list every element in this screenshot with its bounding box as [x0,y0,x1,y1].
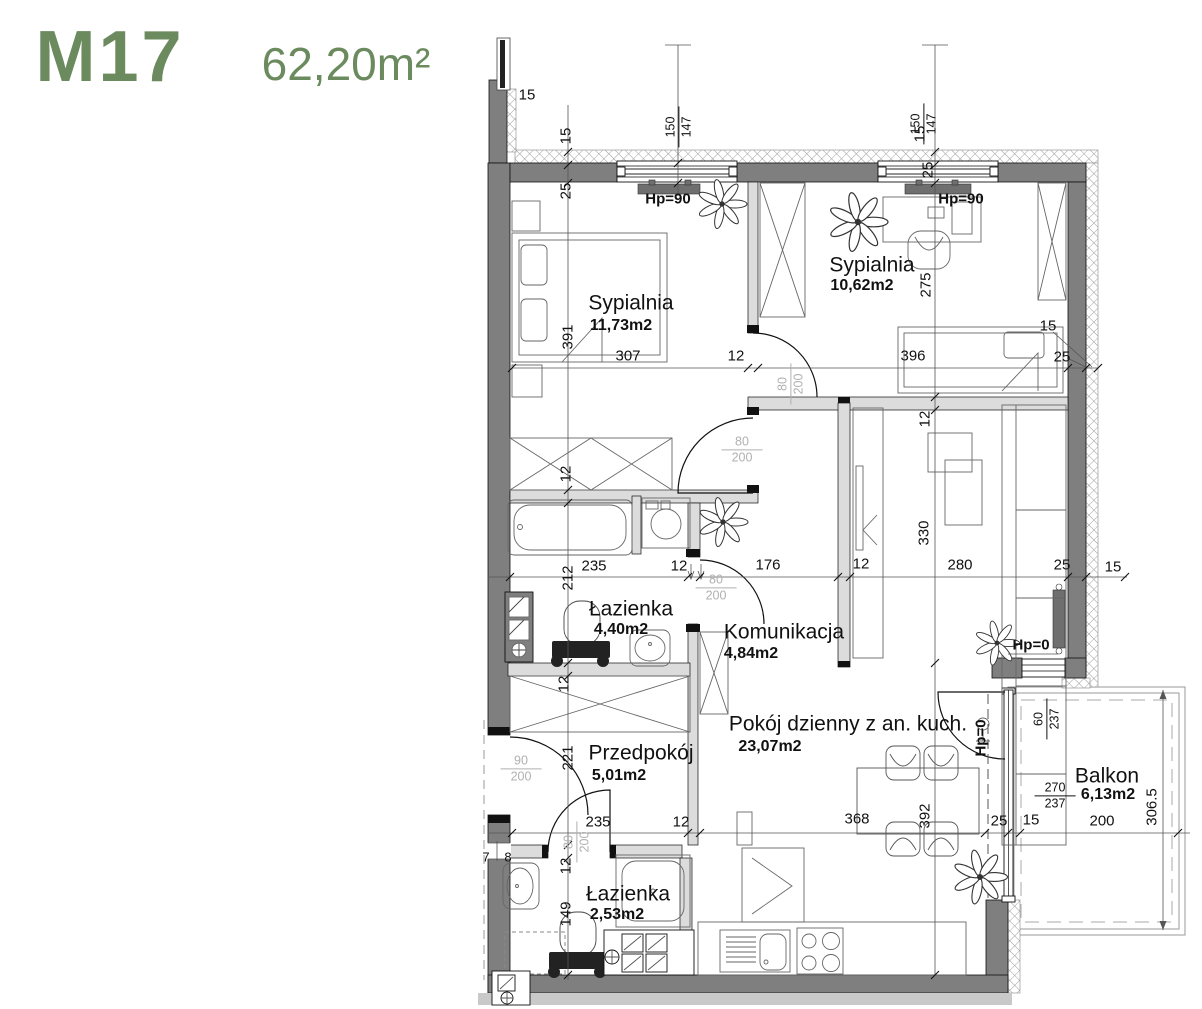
washing-machine [642,498,690,548]
dim-mid-4: 330 [917,520,932,545]
dim-rowB-4: 280 [947,558,972,573]
room-label-hall: Komunikacja [724,622,844,643]
door-size-bedroom2: 80200 [776,374,805,395]
dim-rowB-6: 15 [1105,560,1122,575]
dim-left-0: 15 [559,128,574,145]
tv-unit-living [853,408,883,658]
room-area-balcony: 6,13m2 [1081,787,1135,803]
window-bedroom2 [878,161,998,182]
door-size-bathroom1: 80200 [706,573,727,602]
vent-shaft-bathroom2 [604,930,694,975]
door-size-bedroom1: 80200 [732,435,753,464]
balcony-door-size: 270237 [1045,781,1066,810]
radiator-living [1053,584,1065,654]
wardrobe-bedroom1 [510,438,672,490]
dim-rowC-1: 12 [673,815,690,830]
dim-entry-layer-8: 8 [504,851,511,864]
dim-rowA-1: 12 [728,349,745,364]
dim-balcony-depth: 306.5 [1145,788,1160,826]
room-label-bedroom2: Sypialnia [829,255,914,276]
dim-left-2: 391 [561,324,576,349]
neighbour-wall-band [478,993,1012,1005]
sill-label-window2: Hp=90 [938,192,983,207]
sill-label-window1: Hp=90 [645,192,690,207]
dim-mid-0: 15 [913,126,928,143]
window-balcony-small [1022,659,1065,677]
room-area-living: 23,07m2 [738,739,801,755]
room-label-bathroom1: Łazienka [589,599,673,620]
wardrobe-bedroom2-right [1038,183,1066,300]
room-label-entry: Przedpokój [588,743,693,764]
apartment-total-area: 62,20m² [262,41,431,87]
balcony-door-frame [1002,688,1015,902]
bathtub [508,500,632,555]
plant-kitchen [953,849,1007,905]
plant-bedroom2 [829,192,888,253]
balcony-window-size: 60237 [1032,709,1061,730]
room-area-bathroom2: 2,53m2 [590,907,644,923]
apartment-id: M17 [35,21,184,93]
dim-rowC-3: 25 [991,814,1008,829]
dim-rowC-4: 15 [1023,813,1040,828]
dim-rowB-3: 12 [853,557,870,572]
window1-size-label: 150147 [664,117,693,138]
dim-left-3: 12 [559,466,574,483]
dim-rowB-1: 12 [671,559,688,574]
room-area-bedroom2: 10,62m2 [830,278,893,294]
room-label-bedroom1: Sypialnia [588,293,673,314]
sill-label-balcony-door: Hp=0 [974,719,989,756]
dim-rowC-0: 235 [585,815,610,830]
dim-rowB-5: 25 [1054,558,1071,573]
wall-section-above [497,38,510,90]
dim-left-1: 25 [559,183,574,200]
dim-rowC-5: 200 [1089,814,1114,829]
coffee-tables [928,433,982,525]
dim-left-4: 212 [561,565,576,590]
dim-rowB-2: 176 [755,558,780,573]
dim-left-8: 149 [559,901,574,926]
dim-mid-3: 12 [918,411,933,428]
dim-mid-2: 275 [919,272,934,297]
door-size-bathroom2: 80200 [562,832,591,853]
dim-corner-15: 15 [1040,319,1057,334]
room-area-hall: 4,84m2 [724,646,778,662]
room-label-living: Pokój dzienny z an. kuch. [729,714,967,735]
dim-mid-5: 392 [918,803,933,828]
room-area-bedroom1: 11,73m2 [590,318,652,334]
dim-rowA-2: 396 [900,349,925,364]
dim-left-6: 221 [561,745,576,770]
floor-plan-page: M17 62,20m² Sypialnia 11,73m2 Sypialnia … [0,0,1202,1009]
dim-rowB-0: 235 [581,559,606,574]
kitchen [698,812,966,975]
wardrobe-bedroom2-left [760,183,805,317]
dim-corner-25: 25 [1054,350,1071,365]
dim-top-left: 15 [519,88,536,103]
room-area-bathroom1: 4,40m2 [594,622,648,638]
plant-bedroom1 [698,179,747,230]
floor-plan-drawing [0,0,1202,1009]
vent-shaft-corner [492,971,530,1005]
plant-hall [699,497,748,548]
dim-rowC-2: 368 [844,812,869,827]
dim-left-7: 12 [559,858,574,875]
dim-entry-layer-7: 7 [482,851,489,864]
dim-rowA-0: 307 [615,349,640,364]
room-label-balcony: Balkon [1075,766,1139,787]
room-area-entry: 5,01m2 [592,768,646,784]
sill-label-balcony-window: Hp=0 [1012,638,1049,653]
wardrobe-entry [510,676,690,732]
vent-shaft-bathroom1 [505,592,533,662]
dining-table [857,746,979,856]
dim-mid-1: 25 [921,162,936,179]
dim-left-5: 12 [557,676,572,693]
door-size-entrance: 90200 [511,754,532,783]
room-label-bathroom2: Łazienka [586,884,670,905]
